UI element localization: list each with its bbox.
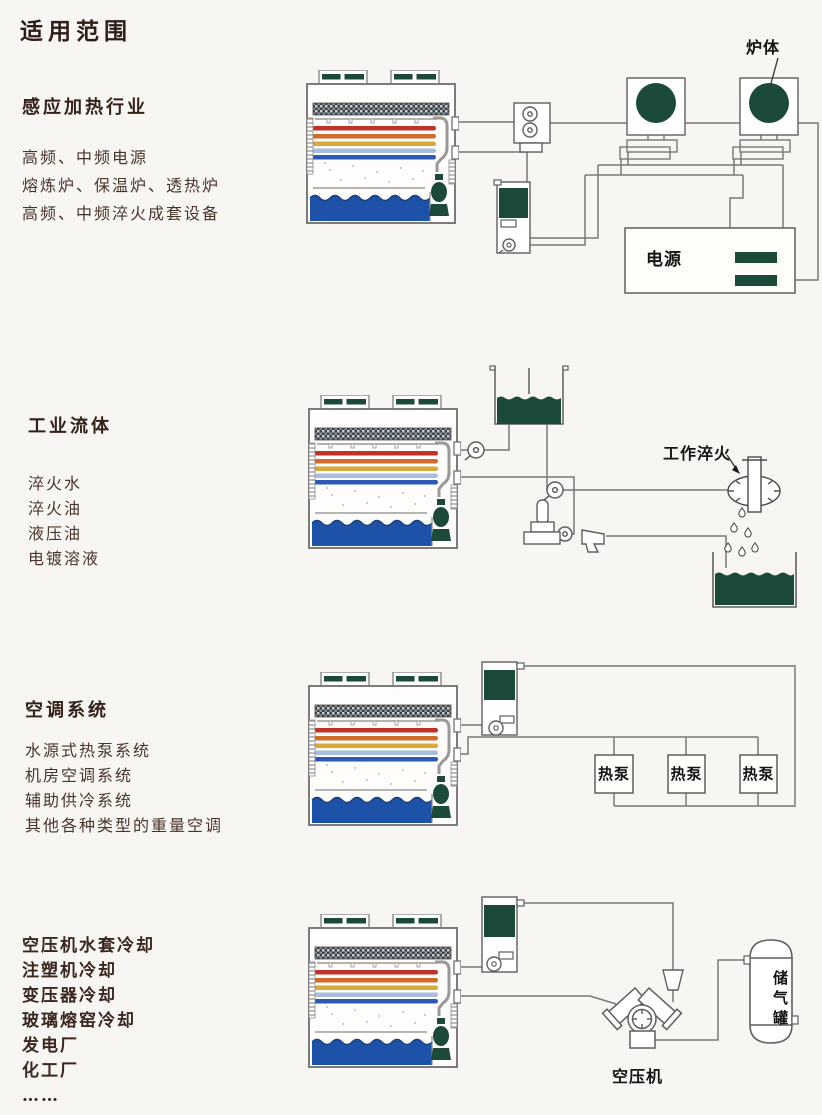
list-item: 熔炼炉、保温炉、透热炉 — [22, 172, 220, 200]
list-item: 淬火油 — [28, 496, 100, 521]
power-supply-label: 电源 — [646, 245, 682, 270]
list-item: 液压油 — [28, 521, 100, 546]
list-item: 高频、中频电源 — [22, 144, 220, 172]
list-item: 淬火水 — [28, 471, 100, 496]
tank-water — [484, 670, 515, 700]
power-bus-bar — [735, 252, 777, 263]
cooling-tower — [309, 395, 461, 548]
tank-liquid — [497, 397, 561, 425]
buffer-tank — [482, 897, 524, 972]
furnace-1 — [620, 78, 685, 159]
section-list-hvac: 水源式热泵系统 机房空调系统 辅助供冷系统 其他各种类型的重量空调 — [25, 738, 223, 838]
open-tank — [490, 366, 568, 424]
buffer-tank — [494, 180, 530, 253]
diagram-induction-heating — [290, 30, 822, 320]
tank-water — [499, 188, 528, 218]
diagram-industrial-fluids — [290, 360, 822, 620]
filter-vessel — [524, 500, 560, 544]
section-heading-fluids: 工业流体 — [28, 412, 112, 438]
heat-pump-label-2: 热泵 — [668, 763, 705, 784]
furnace-coil — [636, 83, 676, 123]
list-item: 水源式热泵系统 — [25, 738, 223, 763]
cooling-tower — [309, 672, 461, 825]
section-heading-induction: 感应加热行业 — [22, 93, 148, 119]
quench-induction-coil — [728, 457, 780, 512]
furnace-coil — [749, 83, 789, 123]
list-item: 其他各种类型的重量空调 — [25, 813, 223, 838]
air-compressor-label: 空压机 — [612, 1063, 663, 1087]
air-tank-label: 储气罐 — [770, 970, 791, 1040]
catalog-page: 适用范围 感应加热行业 高频、中频电源 熔炼炉、保温炉、透热炉 高频、中频淬火成… — [0, 0, 822, 1115]
heat-pump-label-3: 热泵 — [740, 763, 777, 784]
work-quench-label: 工作淬火 — [663, 440, 731, 464]
air-compressor — [603, 986, 682, 1048]
list-item: 电镀溶液 — [28, 546, 100, 571]
funnel-inlet — [663, 970, 683, 990]
list-item: 辅助供冷系统 — [25, 788, 223, 813]
valve-manifold — [514, 103, 550, 152]
list-item: 发电厂 — [22, 1034, 155, 1059]
pump-icons — [465, 442, 572, 541]
section-list-induction: 高频、中频电源 熔炼炉、保温炉、透热炉 高频、中频淬火成套设备 — [22, 144, 220, 228]
buffer-tank — [482, 662, 524, 735]
section-heading-hvac: 空调系统 — [25, 696, 109, 722]
diagram-hvac — [290, 640, 822, 840]
list-item: 空压机水套冷却 — [22, 934, 155, 959]
furnace-2 — [733, 78, 798, 159]
list-item: 玻璃熔窑冷却 — [22, 1009, 155, 1034]
list-item: 注塑机冷却 — [22, 959, 155, 984]
power-bus-bar — [735, 275, 777, 286]
heat-pump-label-1: 热泵 — [595, 763, 633, 784]
section-list-fluids: 淬火水 淬火油 液压油 电镀溶液 — [28, 471, 100, 571]
page-title: 适用范围 — [20, 12, 132, 46]
diagram-compressor — [290, 890, 822, 1115]
list-item: 变压器冷却 — [22, 984, 155, 1009]
tank-water — [484, 905, 515, 937]
spray-gun — [582, 530, 604, 552]
cooling-tower — [309, 914, 461, 1067]
list-item: 机房空调系统 — [25, 763, 223, 788]
water-droplets — [725, 508, 758, 556]
furnace-label: 炉体 — [746, 34, 780, 58]
list-item: 高频、中频淬火成套设备 — [22, 200, 220, 228]
section-list-misc: 空压机水套冷却 注塑机冷却 变压器冷却 玻璃熔窑冷却 发电厂 化工厂 …… — [22, 934, 155, 1109]
list-item: …… — [22, 1084, 155, 1109]
cooling-tower — [307, 70, 459, 223]
quench-liquid — [715, 573, 794, 606]
list-item: 化工厂 — [22, 1059, 155, 1084]
